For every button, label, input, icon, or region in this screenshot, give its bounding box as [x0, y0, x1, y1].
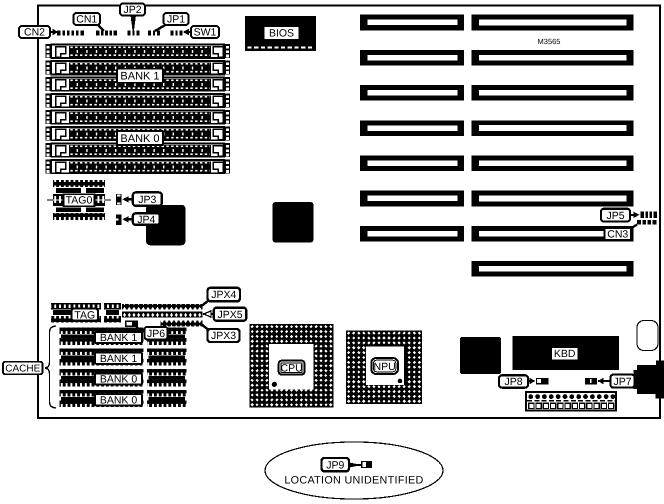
svg-text:SW1: SW1: [194, 27, 217, 39]
svg-text:JP4: JP4: [137, 214, 155, 226]
svg-text:CN1: CN1: [76, 14, 97, 26]
svg-text:BANK 1: BANK 1: [100, 332, 138, 344]
svg-text:KBD: KBD: [554, 348, 576, 360]
svg-text:NPU: NPU: [374, 361, 396, 373]
svg-text:JPX3: JPX3: [211, 330, 236, 342]
svg-text:JP6: JP6: [147, 328, 165, 340]
svg-text:JPX4: JPX4: [211, 289, 236, 301]
svg-text:JP8: JP8: [504, 376, 522, 388]
svg-text:CACHE: CACHE: [5, 364, 40, 375]
svg-text:CPU: CPU: [281, 363, 303, 375]
svg-text:CN3: CN3: [607, 229, 628, 241]
svg-text:LOCATION UNIDENTIFIED: LOCATION UNIDENTIFIED: [284, 475, 423, 487]
svg-text:TAG0: TAG0: [66, 195, 93, 207]
svg-text:BANK 0: BANK 0: [120, 133, 159, 145]
svg-text:JP3: JP3: [138, 194, 156, 206]
svg-text:BIOS: BIOS: [269, 27, 294, 39]
svg-text:JP9: JP9: [326, 459, 344, 471]
svg-text:JP1: JP1: [167, 14, 185, 26]
svg-text:JP5: JP5: [606, 210, 624, 222]
svg-text:CN2: CN2: [24, 27, 45, 39]
svg-text:M3565: M3565: [538, 37, 561, 46]
svg-text:TAG: TAG: [74, 309, 95, 321]
svg-text:JP2: JP2: [123, 4, 141, 16]
svg-text:BANK 0: BANK 0: [100, 394, 138, 406]
svg-text:JPX5: JPX5: [217, 309, 242, 321]
svg-text:BANK 0: BANK 0: [100, 374, 138, 386]
svg-text:JP7: JP7: [613, 376, 631, 388]
svg-text:BANK 1: BANK 1: [100, 353, 138, 365]
svg-text:BANK 1: BANK 1: [120, 71, 159, 83]
